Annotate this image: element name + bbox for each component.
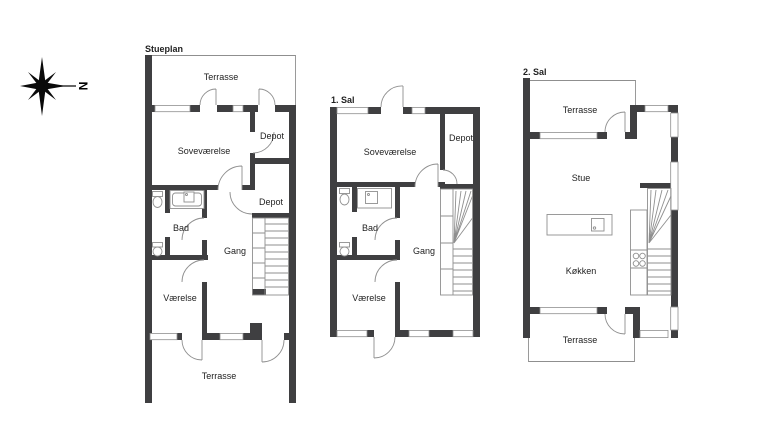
floor-plan-stueplan: Stueplan — [145, 44, 296, 403]
room-label-terrasse-top: Terrasse — [204, 72, 239, 82]
room-label-stue: Stue — [572, 173, 591, 183]
doors — [182, 89, 284, 362]
kitchen-fixtures — [547, 210, 647, 295]
staircase — [648, 189, 672, 296]
walls — [523, 78, 678, 338]
toilet-icon — [340, 243, 350, 248]
room-label-bad: Bad — [173, 223, 189, 233]
sink-icon — [366, 192, 378, 204]
floor-plan-first-floor: 1. Sal — [330, 86, 480, 358]
plan-title-first-floor: 1. Sal — [331, 95, 355, 105]
room-label-sovevaerelse: Soveværelse — [178, 146, 231, 156]
staircase — [253, 218, 289, 295]
toilet-icon — [340, 189, 350, 194]
room-label-gang: Gang — [413, 246, 435, 256]
toilet-icon — [153, 192, 163, 197]
compass-rose: N — [20, 57, 90, 116]
windows — [150, 105, 243, 339]
toilet-icon — [153, 243, 163, 248]
kitchen-counter-icon — [631, 210, 648, 295]
plan-title-second-floor: 2. Sal — [523, 67, 547, 77]
room-label-vaerelse: Værelse — [352, 293, 386, 303]
room-label-terrasse-bottom: Terrasse — [202, 371, 237, 381]
plan-title-stueplan: Stueplan — [145, 44, 183, 54]
room-label-bad: Bad — [362, 223, 378, 233]
room-label-depot-lower: Depot — [259, 197, 284, 207]
floor-plan-page: N Stueplan — [0, 0, 768, 422]
room-label-depot-upper: Depot — [260, 131, 285, 141]
room-label-vaerelse: Værelse — [163, 293, 197, 303]
staircase — [441, 189, 473, 295]
room-label-koekken: Køkken — [566, 266, 597, 276]
compass-north-letter: N — [76, 82, 90, 91]
room-label-depot: Depot — [449, 133, 474, 143]
room-label-terrasse-bottom: Terrasse — [563, 335, 598, 345]
room-label-sovevaerelse: Soveværelse — [364, 147, 417, 157]
room-label-gang: Gang — [224, 246, 246, 256]
floor-plan-second-floor: 2. Sal — [523, 67, 678, 362]
room-label-terrasse-top: Terrasse — [563, 105, 598, 115]
floor-plan-drawing: N Stueplan — [0, 0, 768, 422]
